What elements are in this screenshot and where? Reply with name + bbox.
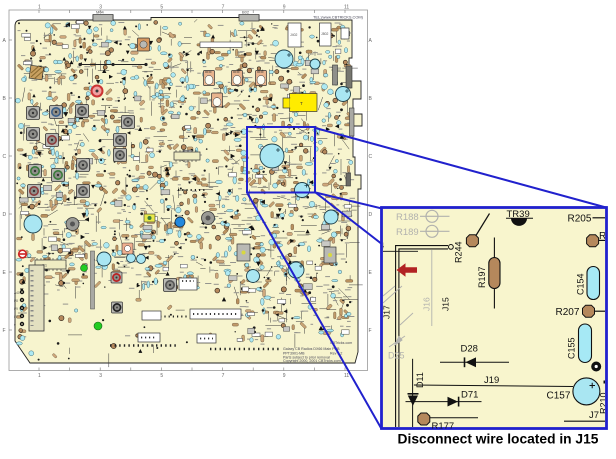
svg-text:D25: D25	[388, 351, 405, 361]
svg-text:R189: R189	[396, 227, 419, 238]
svg-text:9: 9	[283, 373, 286, 379]
svg-text:J17: J17	[382, 305, 392, 319]
svg-text:5: 5	[160, 373, 163, 379]
svg-text:T: T	[300, 101, 303, 106]
svg-text:1: 1	[38, 5, 41, 11]
svg-text:R244: R244	[454, 241, 464, 263]
svg-text:5: 5	[160, 5, 163, 11]
svg-text:11: 11	[344, 373, 349, 379]
svg-text:7: 7	[222, 373, 225, 379]
svg-text:B02: B02	[242, 10, 250, 15]
svg-text:C: C	[3, 154, 7, 160]
svg-text:P8: P8	[14, 299, 18, 303]
svg-text:1: 1	[38, 373, 41, 379]
svg-text:R205: R205	[568, 214, 592, 225]
svg-text:C: C	[369, 154, 373, 160]
svg-text:J802: J802	[321, 32, 328, 36]
svg-text:J16: J16	[422, 297, 432, 311]
svg-text:11: 11	[344, 5, 349, 11]
svg-text:Copyright 2000, 2001 CBTricks.: Copyright 2000, 2001 CBTricks.com	[283, 359, 341, 363]
svg-text:0: 0	[14, 323, 16, 327]
svg-text:D: D	[369, 212, 373, 218]
svg-text:D28: D28	[461, 344, 478, 355]
svg-text:J402: J402	[290, 33, 297, 37]
svg-text:D11: D11	[415, 372, 425, 388]
svg-text:P9: P9	[14, 307, 18, 311]
svg-text:C154: C154	[576, 273, 586, 295]
svg-text:C155: C155	[567, 337, 577, 359]
svg-text:F7: F7	[14, 315, 18, 319]
svg-text:D71: D71	[461, 390, 478, 401]
svg-text:R188: R188	[396, 212, 419, 223]
svg-text:7: 7	[222, 5, 225, 11]
svg-text:9: 9	[283, 5, 286, 11]
svg-text:M04: M04	[96, 10, 105, 15]
svg-text:R197: R197	[477, 266, 487, 288]
svg-text:J19: J19	[484, 375, 499, 386]
svg-text:TEL:(www.CBTRICKS.COM): TEL:(www.CBTRICKS.COM)	[313, 15, 364, 20]
svg-text:J15: J15	[441, 297, 451, 311]
svg-text:3: 3	[99, 373, 102, 379]
svg-text:Disconnect wire located in J15: Disconnect wire located in J15	[398, 432, 599, 447]
svg-text:F: F	[3, 328, 6, 334]
svg-text:Galaxy CB Radios DX66 Main PCB: Galaxy CB Radios DX66 Main PCB	[283, 347, 340, 351]
svg-text:F: F	[369, 328, 372, 334]
svg-text:C157: C157	[547, 391, 571, 402]
svg-text:A40: A40	[14, 291, 20, 295]
svg-text:D: D	[3, 212, 7, 218]
svg-text:R207: R207	[556, 307, 580, 318]
